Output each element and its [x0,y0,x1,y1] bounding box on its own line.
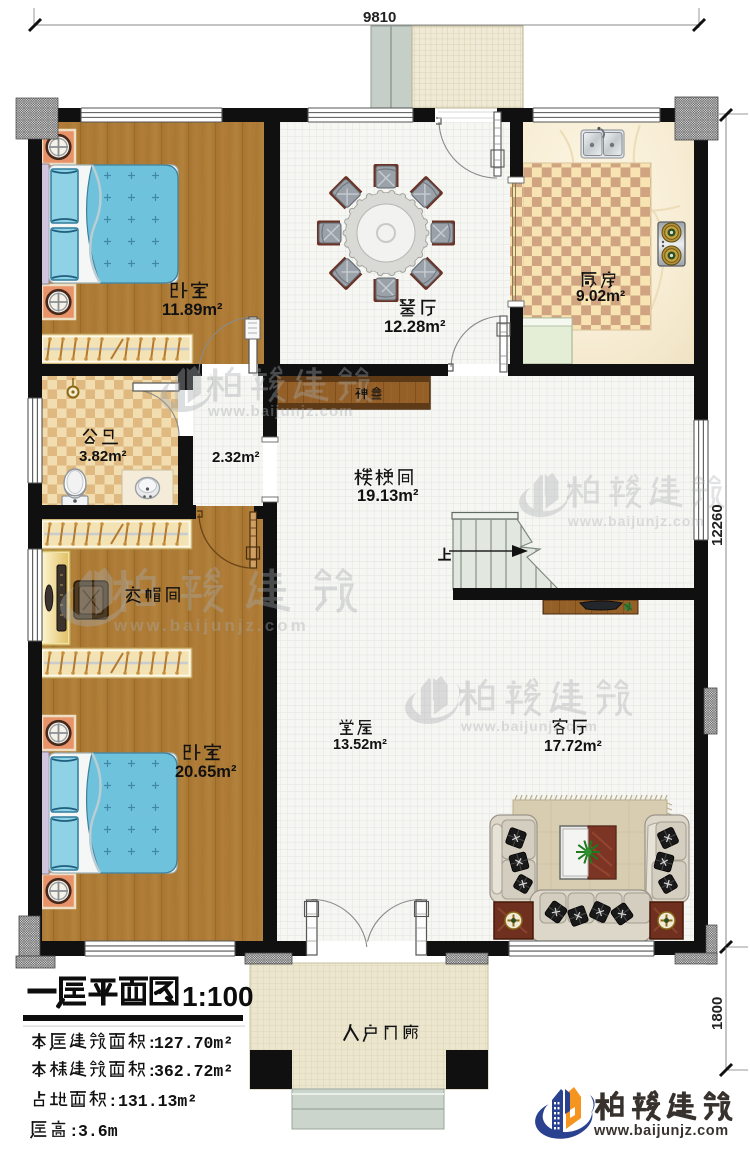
svg-text::: : [110,1091,116,1110]
svg-text:20.65m²: 20.65m² [175,763,237,781]
svg-text:131.13m²: 131.13m² [118,1092,197,1111]
svg-text:2.32m²: 2.32m² [212,449,260,466]
svg-text:9810: 9810 [363,9,396,26]
svg-text:www.baijunjz.com: www.baijunjz.com [593,1123,729,1139]
svg-text:11.89m²: 11.89m² [162,301,223,319]
svg-text:3.6m: 3.6m [78,1122,118,1141]
svg-text:13.52m²: 13.52m² [333,737,387,753]
svg-text:9.02m²: 9.02m² [576,288,625,305]
svg-text:19.13m²: 19.13m² [357,487,419,505]
svg-text:1:100: 1:100 [182,981,254,1012]
svg-text:www.baijunjz.com: www.baijunjz.com [567,513,705,529]
svg-text:www.baijunjz.com: www.baijunjz.com [207,403,353,420]
svg-text:1800: 1800 [709,997,726,1030]
svg-text:3.82m²: 3.82m² [79,448,127,465]
svg-text:12.28m²: 12.28m² [384,318,446,336]
svg-text:362.72m²: 362.72m² [154,1062,233,1081]
svg-text:17.72m²: 17.72m² [544,738,602,755]
svg-text:127.70m²: 127.70m² [154,1034,233,1053]
svg-text:12260: 12260 [709,504,726,546]
svg-text:www.baijunjz.com: www.baijunjz.com [113,616,309,635]
svg-text::: : [71,1121,77,1140]
